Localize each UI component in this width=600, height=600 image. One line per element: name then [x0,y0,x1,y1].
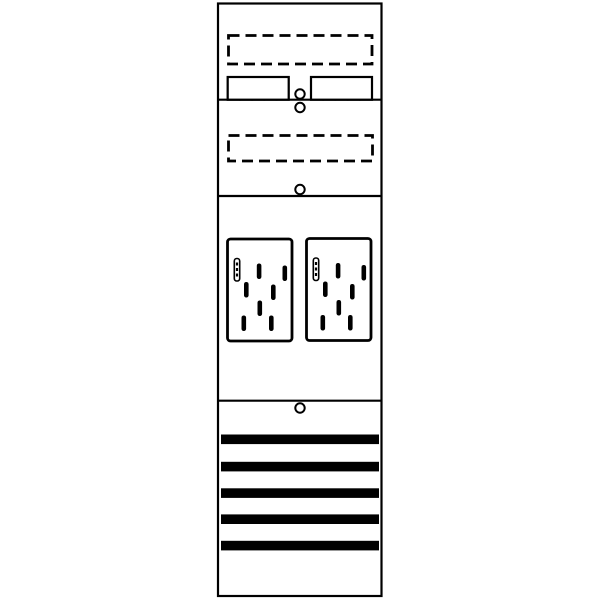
busbar-cover-strip [221,514,379,524]
mounting-slot [337,300,342,316]
meter-plate [307,239,372,341]
terminal-group-outline [228,77,289,100]
screw-hole [295,103,304,112]
mounting-slot [348,315,353,331]
seal-slot-mark [236,263,238,266]
mounting-slot [350,284,355,300]
seal-slot-mark [236,274,238,277]
mounting-slot [242,316,247,332]
mounting-slot [271,285,276,301]
mounting-slot [321,315,326,331]
screw-hole [295,403,304,412]
mounting-slot [258,301,263,317]
seal-slot-mark [315,268,317,271]
seal-slot-mark [236,268,238,271]
mounting-slot [336,263,341,279]
screw-hole [295,185,304,194]
seal-slot-mark [315,273,317,276]
mounting-slot [269,316,274,332]
busbar-cover-strip [221,462,379,472]
screenshot-canvas: Meter panel line drawing [0,0,600,600]
mounting-slot [362,265,367,281]
busbar-cover-strip [221,435,379,445]
seal-slot-mark [315,262,317,265]
meter-plate [228,239,293,341]
busbar-cover-strip [221,541,379,551]
mounting-slot [244,282,249,298]
mounting-slot [257,264,262,280]
screw-hole [295,89,304,98]
terminal-group-outline [311,77,372,100]
meter-panel-diagram: Meter panel line drawing [0,0,600,600]
busbar-cover-strip [221,488,379,498]
meter-plate-outline [228,239,293,341]
mounting-slot [283,266,288,282]
meter-plate-outline [307,239,372,341]
mounting-slot [323,282,328,298]
